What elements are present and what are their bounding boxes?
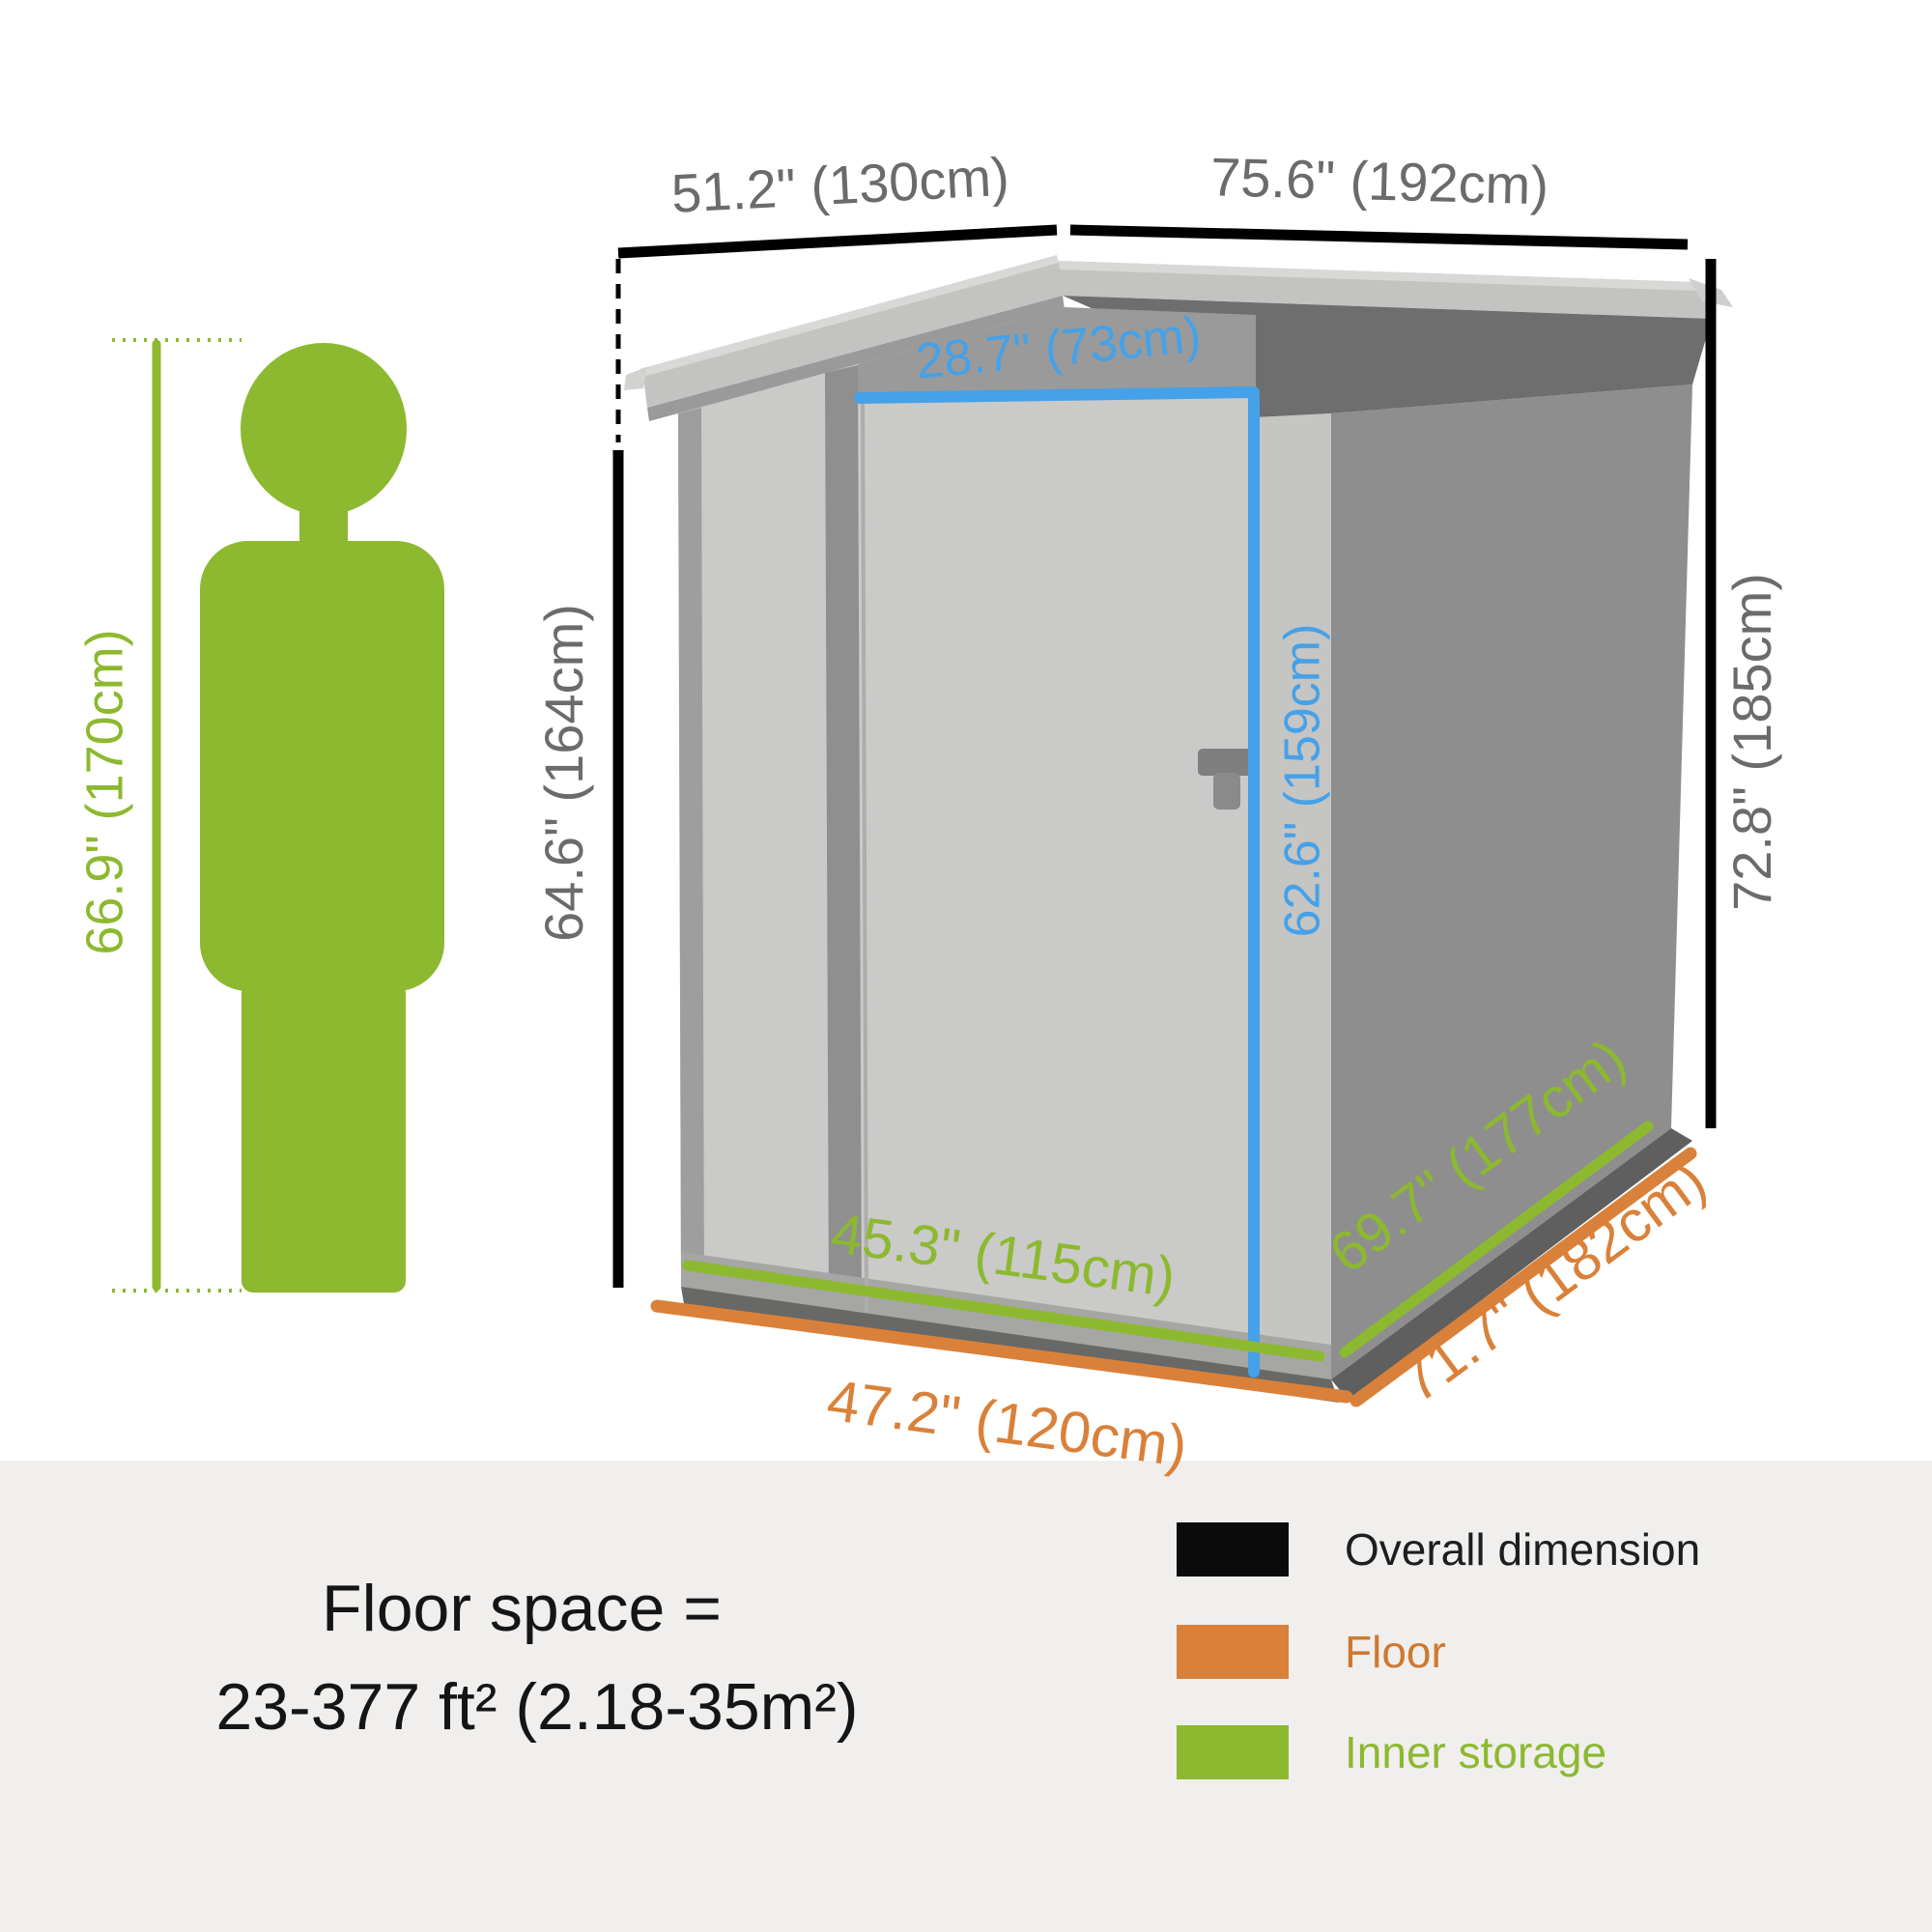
overall-right-height-label: 72.8" (185cm) [1721,573,1782,911]
legend-label-floor: Floor [1345,1627,1446,1677]
front-divider-trim [825,365,862,1312]
person-height-label: 66.9" (170cm) [75,629,133,954]
legend-swatch-floor [1177,1625,1289,1679]
legend-swatch-inner [1177,1725,1289,1779]
floor-space-line2: 23-377 ft² (2.18-35m²) [215,1670,858,1744]
legend-label-overall: Overall dimension [1345,1524,1700,1575]
shed-dimension-diagram: 66.9" (170cm) 51.2" (130cm) 75.6" (192cm… [0,0,1932,1932]
overall-width-label: 51.2" (130cm) [669,146,1010,224]
door-handle [1198,749,1252,776]
legend-swatch-overall [1177,1522,1289,1577]
front-wall [678,307,1331,1379]
figure-torso [200,541,444,991]
door-handle-knob [1213,773,1240,810]
door-width-line [860,392,1254,398]
floor-space-line1: Floor space = [322,1572,722,1645]
overall-left-height-label: 64.6" (164cm) [533,604,594,942]
figure-legs [241,981,406,1293]
door-height-label: 62.6" (159cm) [1275,624,1331,938]
front-left-corner-trim [678,408,704,1291]
roof-left-eave-tab [624,367,647,390]
human-figure [200,343,444,1293]
overall-depth-label: 75.6" (192cm) [1209,146,1548,215]
overall-width-line [618,230,1057,253]
corner-shadow-patch [1256,313,1331,417]
legend-label-inner: Inner storage [1345,1727,1606,1777]
overall-depth-line [1070,230,1688,244]
